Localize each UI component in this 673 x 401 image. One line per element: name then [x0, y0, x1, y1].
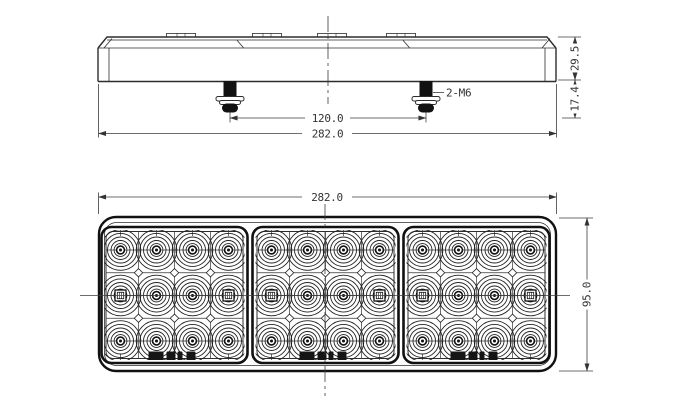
dim-label-total-height: 29.5	[569, 46, 582, 71]
led-pod	[251, 227, 400, 363]
led-center-dot	[119, 249, 122, 252]
stud-shaft	[420, 81, 433, 97]
dim-label-stud-protrusion: 17.4	[569, 86, 582, 112]
led-center-dot	[191, 340, 194, 343]
certification-marks	[329, 352, 334, 362]
led-center-dot	[270, 249, 273, 252]
led-center-dot	[457, 340, 460, 343]
interstice-diamond	[508, 314, 516, 322]
interstice-diamond	[436, 314, 444, 322]
led-center-dot	[421, 249, 424, 252]
interstice-diamond	[357, 269, 365, 277]
certification-marks	[178, 352, 183, 362]
interstice-diamond	[170, 314, 178, 322]
interstice-diamond	[285, 314, 293, 322]
side-view-dimensions: 120.0 282.0 29.5 17.4 2-M6	[99, 37, 582, 140]
interstice-diamond	[472, 314, 480, 322]
dim-label-side-width: 282.0	[312, 127, 344, 140]
led-pods	[100, 227, 551, 363]
interstice-diamond	[436, 269, 444, 277]
stud-tip	[222, 104, 238, 113]
led-center-dot	[227, 249, 230, 252]
certification-marks	[480, 352, 485, 362]
side-profile-view	[98, 16, 556, 123]
led-center-dot	[378, 340, 381, 343]
led-center-dot	[191, 249, 194, 252]
interstice-diamond	[134, 314, 142, 322]
technical-drawing-canvas: 120.0 282.0 29.5 17.4 2-M6 282.0 95	[0, 0, 673, 401]
interstice-diamond	[472, 269, 480, 277]
led-center-dot	[155, 249, 158, 252]
led-center-dot	[306, 340, 309, 343]
stud-shaft	[224, 81, 237, 97]
led-center-dot	[227, 340, 230, 343]
interstice-diamond	[170, 269, 178, 277]
led-center-dot	[342, 249, 345, 252]
interstice-diamond	[134, 269, 142, 277]
led-center-dot	[270, 340, 273, 343]
dim-label-bolt-spec: 2-M6	[446, 87, 471, 100]
led-center-dot	[306, 249, 309, 252]
certification-marks	[187, 352, 196, 362]
certification-marks	[469, 352, 478, 362]
dim-label-front-height: 95.0	[581, 282, 594, 307]
certification-marks	[300, 352, 315, 362]
lens-top-edge	[98, 37, 556, 48]
lens-joint-right	[403, 40, 410, 48]
led-center-dot	[378, 249, 381, 252]
led-pod	[100, 227, 249, 363]
certification-marks	[338, 352, 347, 362]
certification-marks	[451, 352, 466, 362]
dim-label-bolt-spacing: 120.0	[312, 112, 344, 125]
interstice-diamond	[206, 269, 214, 277]
interstice-diamond	[321, 269, 329, 277]
led-center-dot	[493, 340, 496, 343]
led-center-dot	[529, 340, 532, 343]
led-center-dot	[493, 249, 496, 252]
interstice-diamond	[508, 269, 516, 277]
drawing-sheet: 120.0 282.0 29.5 17.4 2-M6 282.0 95	[0, 0, 673, 401]
interstice-diamond	[357, 314, 365, 322]
led-pod	[402, 227, 551, 363]
stud-tip	[418, 104, 434, 113]
led-center-dot	[342, 340, 345, 343]
interstice-diamond	[285, 269, 293, 277]
certification-marks	[167, 352, 176, 362]
dim-label-front-width: 282.0	[311, 191, 343, 204]
led-center-dot	[155, 340, 158, 343]
certification-marks	[149, 352, 164, 362]
front-lens-view	[80, 204, 570, 396]
led-center-dot	[457, 249, 460, 252]
led-center-dot	[119, 340, 122, 343]
lens-joint-left	[237, 40, 244, 48]
interstice-diamond	[206, 314, 214, 322]
led-center-dot	[421, 340, 424, 343]
certification-marks	[489, 352, 498, 362]
interstice-diamond	[321, 314, 329, 322]
led-center-dot	[529, 249, 532, 252]
